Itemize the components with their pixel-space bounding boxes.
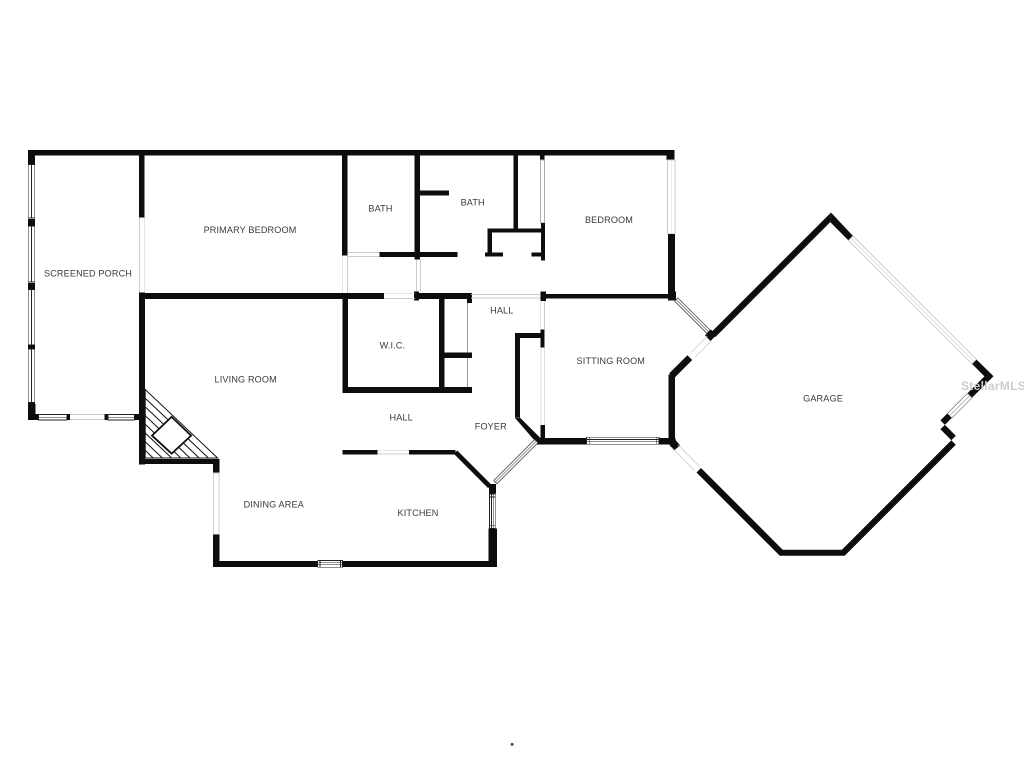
svg-text:BATH: BATH xyxy=(368,204,392,214)
svg-text:SITTING ROOM: SITTING ROOM xyxy=(577,356,646,366)
svg-text:StellarMLS: StellarMLS xyxy=(961,379,1024,393)
svg-text:BEDROOM: BEDROOM xyxy=(585,215,633,225)
svg-text:KITCHEN: KITCHEN xyxy=(398,508,439,518)
svg-text:HALL: HALL xyxy=(490,305,513,315)
svg-text:DINING AREA: DINING AREA xyxy=(244,499,305,509)
svg-text:PRIMARY BEDROOM: PRIMARY BEDROOM xyxy=(204,225,297,235)
svg-text:LIVING ROOM: LIVING ROOM xyxy=(215,375,277,385)
svg-text:BATH: BATH xyxy=(461,198,485,208)
svg-text:FOYER: FOYER xyxy=(475,421,507,431)
svg-text:HALL: HALL xyxy=(390,413,413,423)
svg-text:GARAGE: GARAGE xyxy=(803,394,843,404)
svg-text:SCREENED PORCH: SCREENED PORCH xyxy=(44,269,132,279)
svg-text:W.I.C.: W.I.C. xyxy=(380,341,406,351)
